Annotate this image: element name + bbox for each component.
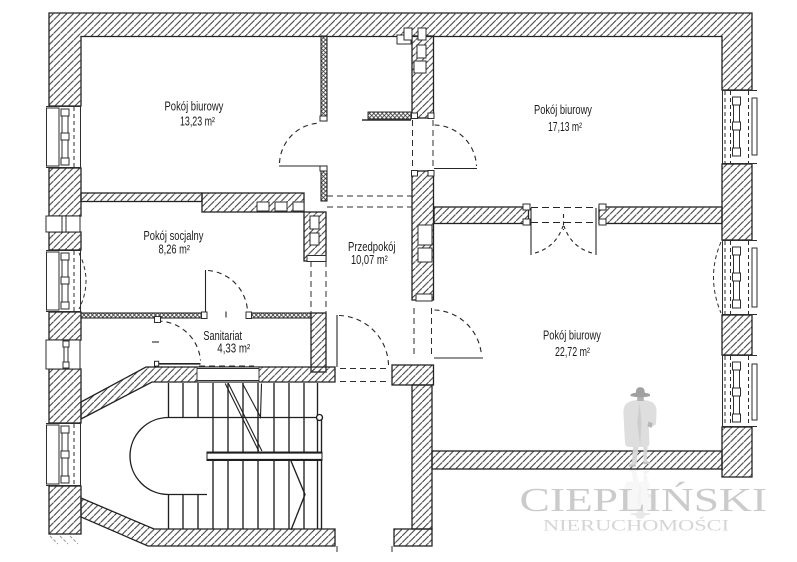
svg-text:8,26 m²: 8,26 m² <box>159 243 191 257</box>
svg-text:4,33 m²: 4,33 m² <box>217 342 250 356</box>
svg-text:Pokój biurowy: Pokój biurowy <box>165 100 224 114</box>
svg-text:NIERUCHOMOŚCI: NIERUCHOMOŚCI <box>543 516 729 535</box>
svg-text:13,23 m²: 13,23 m² <box>180 115 215 129</box>
svg-text:10,07 m²: 10,07 m² <box>351 254 388 268</box>
svg-text:Przedpokój: Przedpokój <box>348 241 396 255</box>
svg-text:Pokój biurowy: Pokój biurowy <box>543 329 601 343</box>
svg-text:Pokój biurowy: Pokój biurowy <box>534 104 592 118</box>
svg-text:22,72 m²: 22,72 m² <box>555 345 590 359</box>
svg-text:Pokój socjalny: Pokój socjalny <box>144 230 204 244</box>
svg-text:CIEPLIŃSKI: CIEPLIŃSKI <box>520 482 768 519</box>
svg-text:17,13 m²: 17,13 m² <box>548 120 582 134</box>
